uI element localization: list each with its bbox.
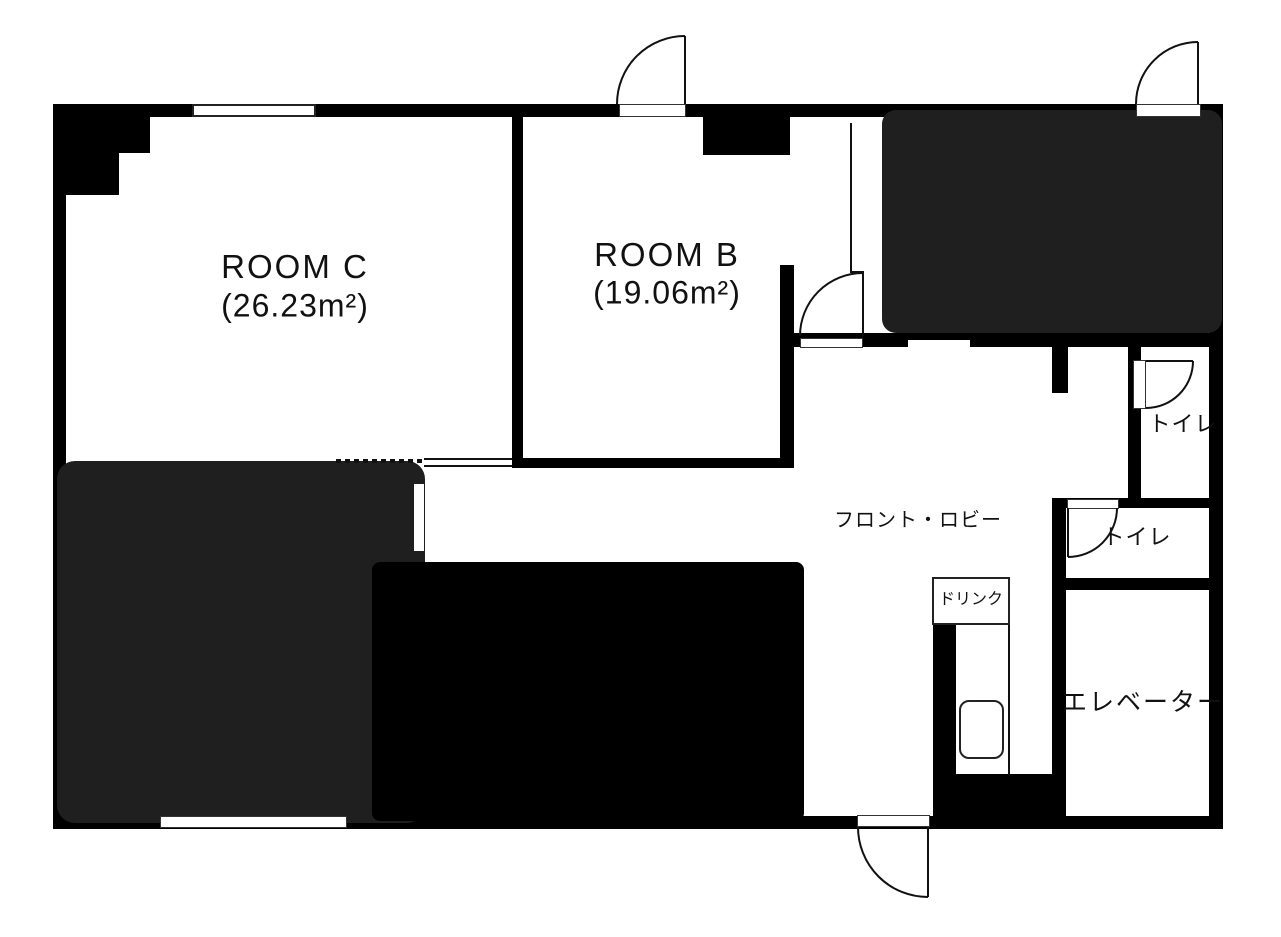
room-b-area: (19.06m²) — [593, 275, 741, 312]
wall-step-top-left-2 — [56, 153, 119, 195]
room-b-label: ROOM B — [594, 236, 740, 274]
window-top-roomc — [192, 104, 316, 117]
toilet-upper-label: トイレ — [1148, 411, 1217, 436]
lobby-label: フロント・ロビー — [834, 510, 1002, 533]
drink-label: ドリンク — [939, 591, 1003, 609]
door-sill-corridor — [800, 338, 863, 348]
toilet-lower-label: トイレ — [1102, 524, 1171, 549]
wall-step-top-left-1 — [56, 110, 150, 153]
door-sill-entrance — [857, 815, 930, 827]
wall-drink-bottom — [933, 774, 1054, 821]
wall-drink-column — [933, 622, 956, 796]
door-arc-entrance — [858, 827, 928, 897]
door-arc-roomb-top — [617, 36, 685, 104]
blocked-area-bottom-center — [372, 562, 804, 821]
shaded-room-top-right — [882, 110, 1222, 333]
room-c-area: (26.23m²) — [221, 288, 369, 325]
opening-shaded-room-sliver — [414, 484, 424, 551]
wall-block-roomb-topright — [703, 110, 790, 155]
opening-front-desk — [908, 340, 970, 347]
door-arc-top-right — [1136, 42, 1198, 104]
shaded-room-bottom-left — [57, 461, 425, 823]
wall-elevator-top — [1052, 578, 1209, 590]
room-c-label: ROOM C — [221, 248, 369, 286]
door-sill-toilet-lower — [1067, 499, 1119, 509]
door-sill-toilet-upper — [1133, 360, 1146, 409]
elevator-label: エレベーター — [1062, 689, 1224, 718]
floor-plan: ROOM C (26.23m²) ROOM B (19.06m²) フロント・ロ… — [0, 0, 1281, 937]
wall-roomb-right — [780, 265, 794, 468]
partition-corridor — [851, 123, 864, 272]
appliance — [959, 700, 1004, 759]
wall-divider-roomc-roomb — [512, 110, 523, 468]
wall-roomb-bottom — [512, 458, 794, 468]
door-arc-toilet-upper — [1146, 361, 1193, 408]
door-arc-corridor — [800, 273, 863, 336]
window-bottom-left — [160, 816, 347, 828]
door-sill-roomb-top — [619, 104, 686, 117]
wall-stub-lobby — [1052, 347, 1068, 393]
door-sill-top-right — [1136, 104, 1201, 117]
wall-elevator-left — [1052, 498, 1066, 820]
